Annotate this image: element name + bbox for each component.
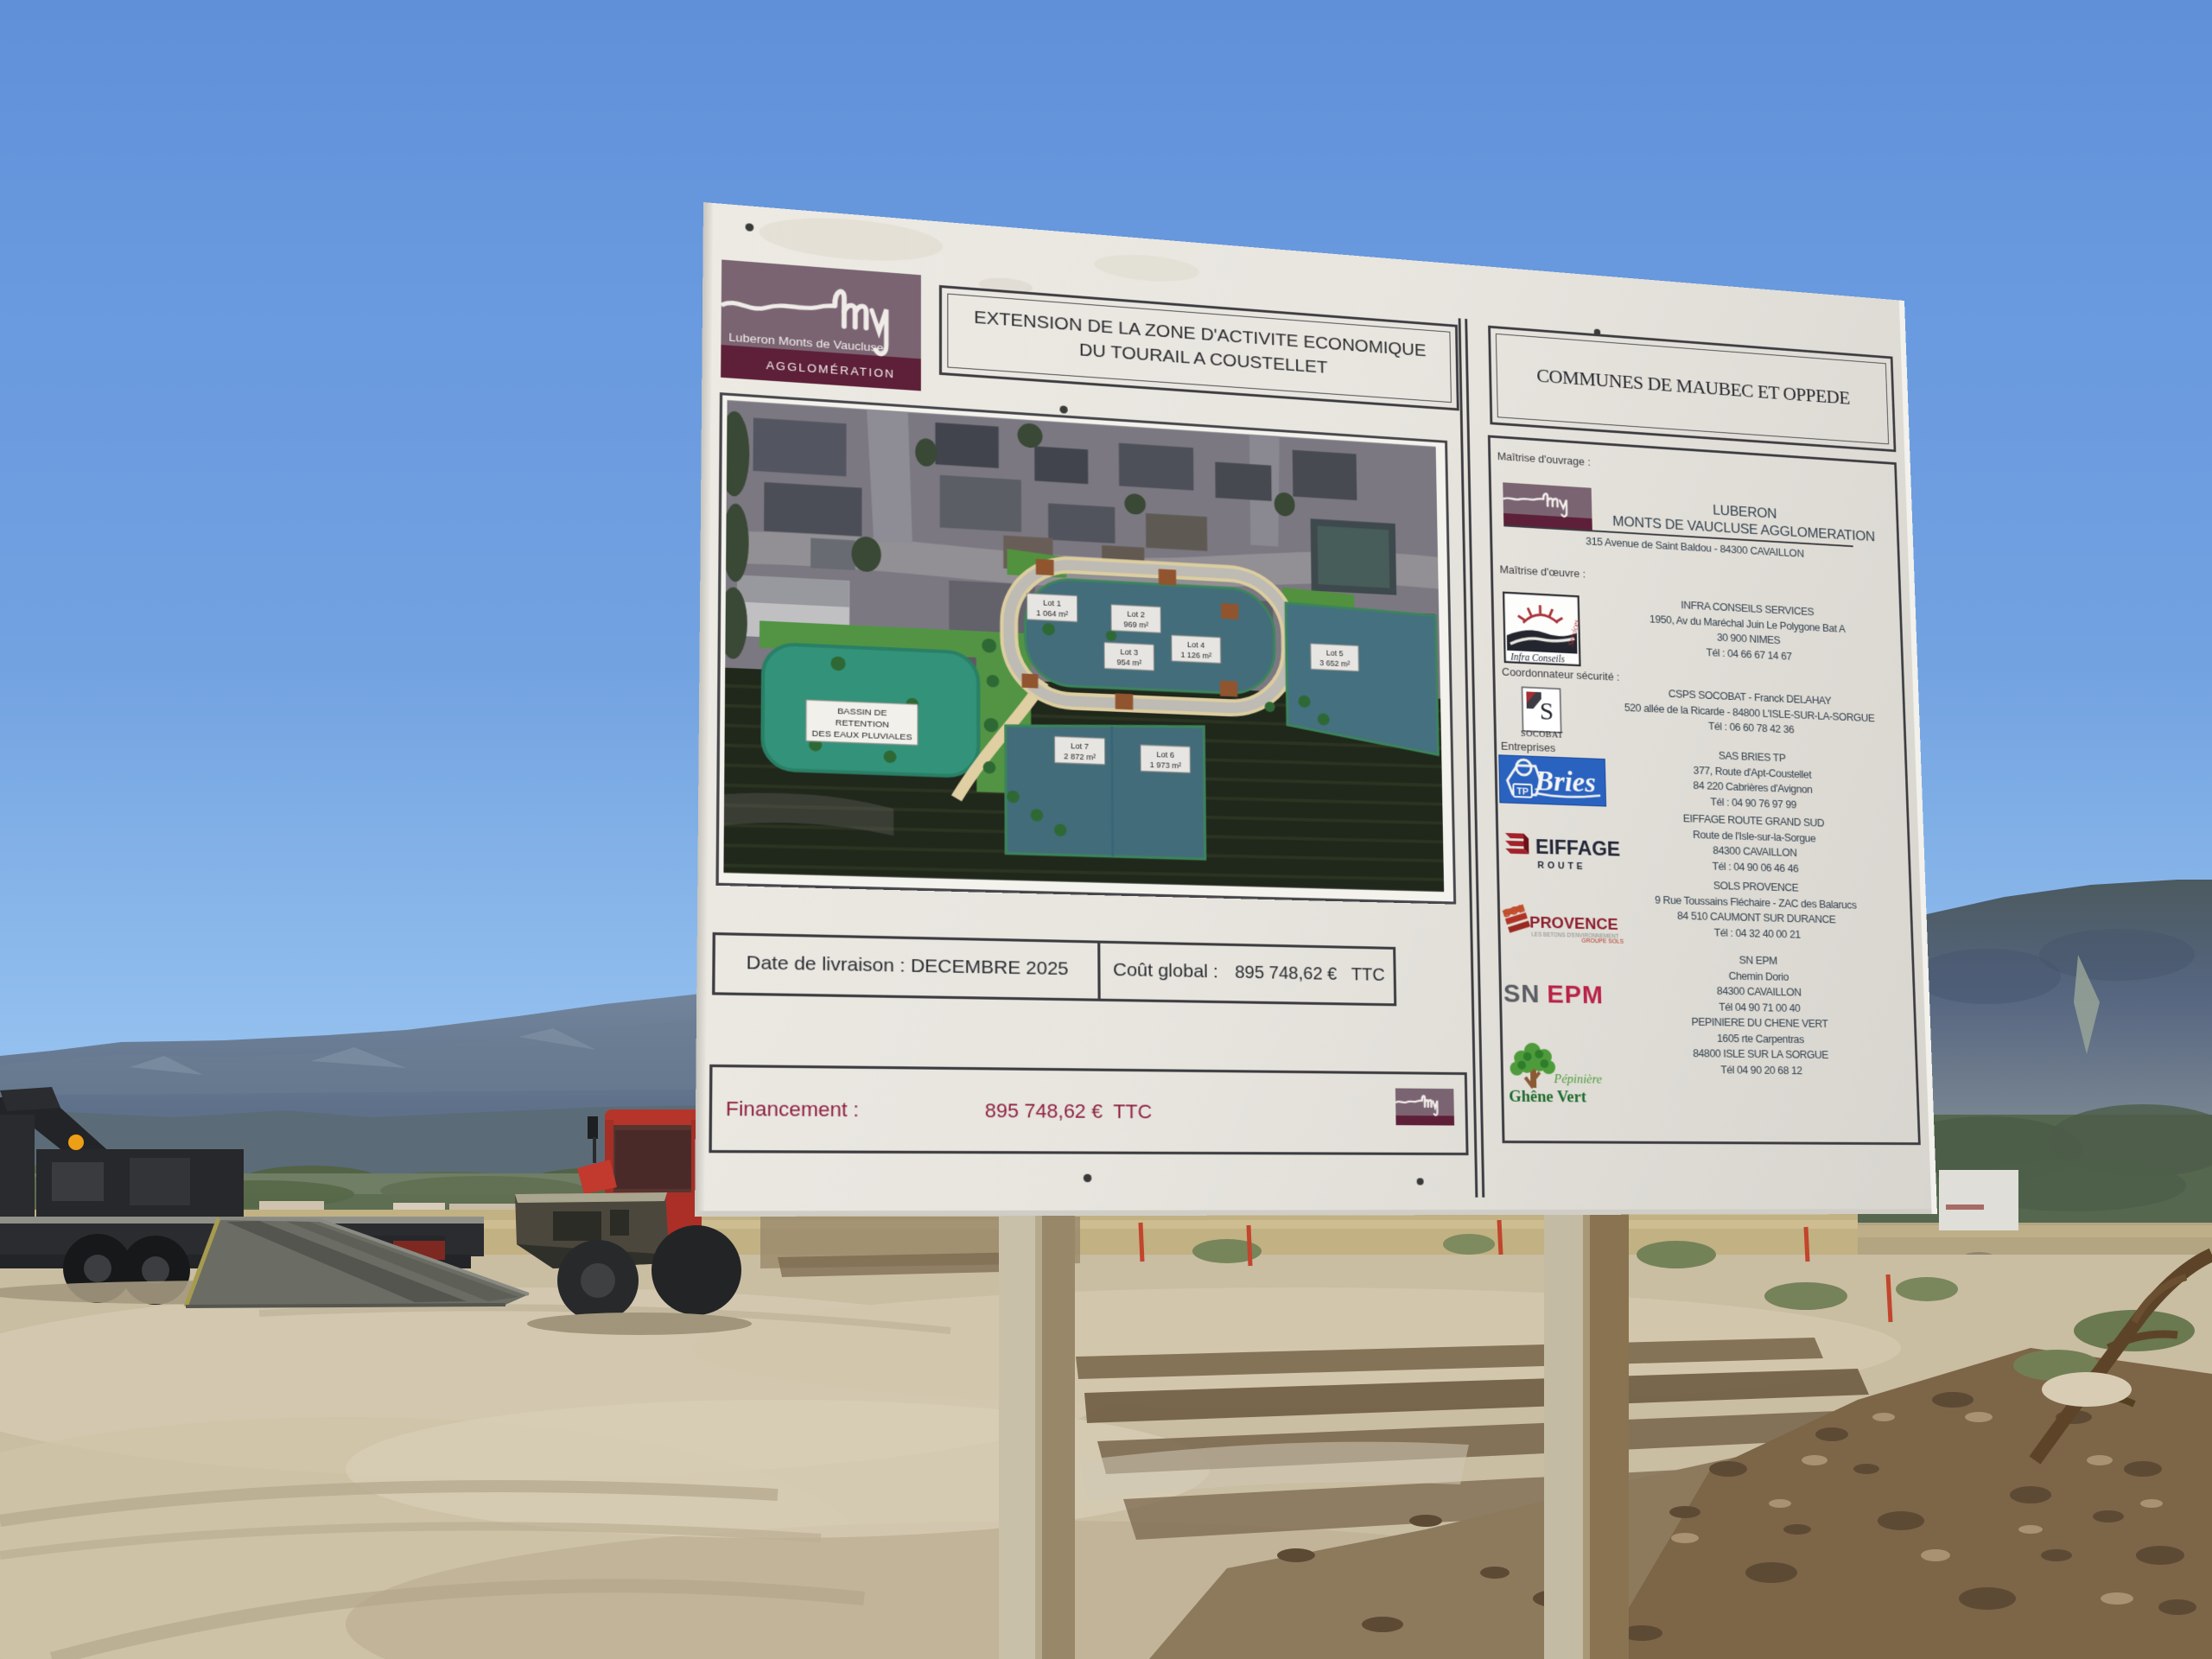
svg-text:TP: TP <box>1516 785 1529 797</box>
svg-text:ROUTE: ROUTE <box>1537 860 1586 872</box>
svg-text:Bries: Bries <box>1534 764 1596 798</box>
svg-text:SN: SN <box>1503 980 1541 1007</box>
svg-text:RETENTION: RETENTION <box>836 718 889 730</box>
svg-text:BASSIN DE: BASSIN DE <box>837 706 887 718</box>
svg-text:Ghêne Vert: Ghêne Vert <box>1509 1088 1586 1106</box>
svg-text:S: S <box>1540 697 1554 726</box>
svg-text:EPM: EPM <box>1547 980 1604 1007</box>
svg-text:Pépinière: Pépinière <box>1553 1071 1602 1086</box>
